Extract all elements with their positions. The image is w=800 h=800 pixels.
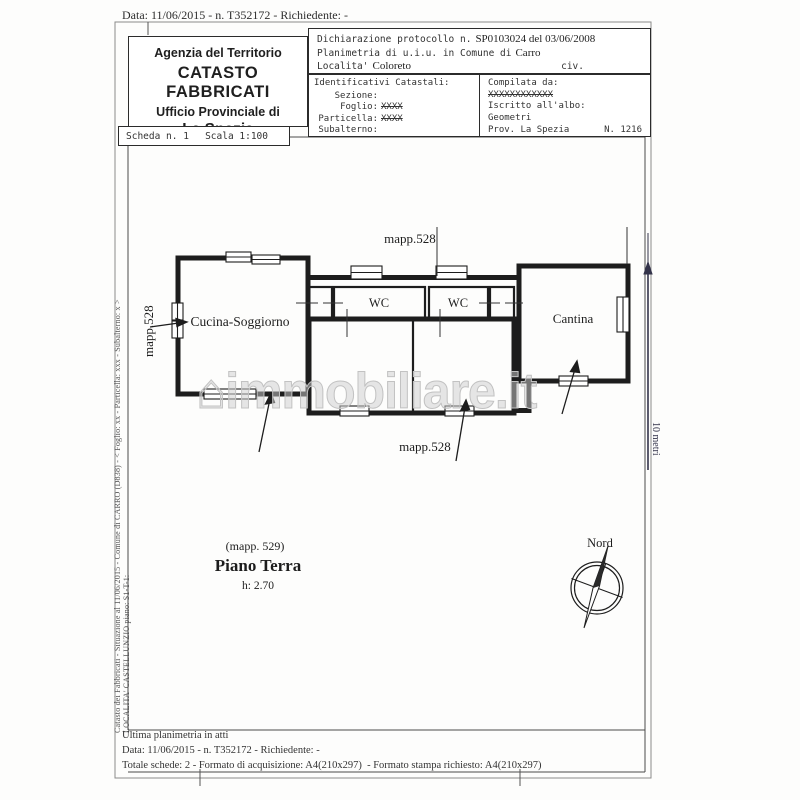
mapp-528-bottom-label: mapp.528 bbox=[375, 439, 475, 455]
floor-height: h: 2.70 bbox=[188, 580, 328, 592]
planimetria-label: Planimetria di u.i.u. in Comune di bbox=[317, 48, 511, 59]
particella-value: XXXX bbox=[381, 114, 403, 124]
albo-value: Geometri bbox=[488, 113, 642, 125]
scala-value: Scala 1:100 bbox=[205, 131, 268, 142]
protocol-value: SP0103024 del 03/06/2008 bbox=[475, 33, 595, 45]
room-label-wc-1: WC bbox=[354, 296, 404, 311]
particella-label: Particella: bbox=[314, 114, 378, 124]
catastali-right-column: Compilata da: XXXXXXXXXXXX Iscritto all'… bbox=[479, 75, 650, 136]
sidebar-localita-line: LOCALITA' CASTELLUNZIO piano: S1-T-1: bbox=[122, 573, 132, 733]
albo-number: N. 1216 bbox=[604, 125, 642, 137]
foglio-value: XXXX bbox=[381, 102, 403, 112]
room-label-cantina: Cantina bbox=[543, 311, 603, 327]
mapp-528-left-label: mapp.528 bbox=[141, 299, 154, 357]
prov-label: Prov. La Spezia bbox=[488, 125, 569, 137]
scheda-number: Scheda n. 1 bbox=[126, 131, 189, 142]
watermark: ⌂immobiliare.it bbox=[196, 362, 536, 420]
localita-label: Localita' bbox=[317, 61, 368, 72]
comune-value: Carro bbox=[515, 47, 540, 59]
scale-bar-label: 10 metri bbox=[650, 422, 661, 470]
top-date-line: Data: 11/06/2015 - n. T352172 - Richiede… bbox=[122, 8, 348, 23]
compass-north-label: Nord bbox=[575, 536, 625, 551]
footer-totale-schede: Totale schede: 2 - Formato di acquisizio… bbox=[122, 759, 541, 772]
scheda-box: Scheda n. 1 Scala 1:100 bbox=[118, 126, 290, 146]
footer-ultima-planimetria: Ultima planimetria in atti bbox=[122, 729, 228, 742]
compilata-value: XXXXXXXXXXXX bbox=[488, 90, 642, 102]
agency-line1: Agenzia del Territorio bbox=[129, 46, 307, 60]
cadastral-document-page: ⌂immobiliare.it bbox=[0, 0, 800, 800]
subalterno-label: Subalterno: bbox=[314, 125, 378, 135]
agency-line2: CATASTO FABBRICATI bbox=[129, 64, 307, 102]
protocol-box: Dichiarazione protocollo n. SP0103024 de… bbox=[308, 28, 651, 74]
watermark-house-icon: ⌂ bbox=[196, 363, 225, 419]
compass-icon bbox=[571, 546, 623, 628]
floor-title: Piano Terra bbox=[188, 556, 328, 576]
albo-label: Iscritto all'albo: bbox=[488, 101, 642, 113]
agency-header-box: Agenzia del Territorio CATASTO FABBRICAT… bbox=[128, 36, 308, 127]
catastali-title: Identificativi Catastali: bbox=[314, 78, 449, 88]
agency-line3: Ufficio Provinciale di bbox=[129, 105, 307, 119]
protocol-label: Dichiarazione protocollo n. bbox=[317, 34, 471, 45]
mapp-529-reference: (mapp. 529) bbox=[205, 539, 305, 554]
room-label-wc-2: WC bbox=[433, 296, 483, 311]
watermark-text: immobiliare.it bbox=[225, 363, 536, 419]
localita-value: Coloreto bbox=[372, 60, 411, 72]
catastali-left-column: Identificativi Catastali: Sezione: Fogli… bbox=[309, 75, 479, 136]
mapp-528-top-label: mapp.528 bbox=[360, 231, 460, 247]
compilata-label: Compilata da: bbox=[488, 78, 642, 90]
sezione-label: Sezione: bbox=[314, 91, 378, 101]
foglio-label: Foglio: bbox=[314, 102, 378, 112]
catastali-box: Identificativi Catastali: Sezione: Fogli… bbox=[308, 74, 651, 137]
room-label-cucina-soggiorno: Cucina-Soggiorno bbox=[170, 314, 310, 330]
footer-date-line: Data: 11/06/2015 - n. T352172 - Richiede… bbox=[122, 744, 320, 757]
civ-label: civ. bbox=[561, 61, 584, 72]
